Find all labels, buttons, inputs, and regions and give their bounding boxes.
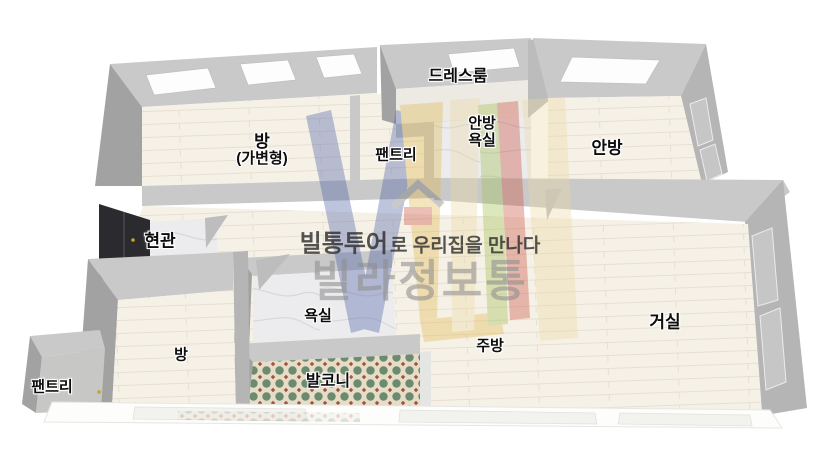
room-label-master-bath-line1: 안방 (468, 116, 496, 133)
room-label-master-bath: 안방 욕실 (468, 116, 496, 150)
room-label-entrance: 현관 (144, 231, 175, 250)
room-label-master-bedroom: 안방 (591, 138, 622, 157)
block-room-small (78, 251, 250, 412)
block-pantry-bottom (22, 330, 105, 413)
floorplan-screenshot: 빌통투어 로 우리집을 만나다 빌라정보통 드레스룸 방 (가변형) 팬트리 안… (0, 0, 840, 472)
room-label-dress-room: 드레스룸 (429, 68, 488, 86)
room-label-bathroom: 욕실 (304, 309, 332, 326)
room-label-pantry-bottom: 팬트리 (31, 380, 72, 397)
room-label-kitchen: 주방 (476, 339, 504, 356)
room-label-convertible-line2: (가변형) (236, 151, 287, 168)
room-label-living-room: 거실 (649, 312, 680, 331)
room-label-pantry-top: 팬트리 (375, 148, 416, 165)
room-label-convertible-line1: 방 (236, 132, 287, 151)
room-label-small-room: 방 (174, 348, 188, 365)
room-label-balcony: 발코니 (306, 373, 350, 391)
room-label-convertible-room: 방 (가변형) (236, 132, 287, 168)
watermark-brand-large: 빌라정보통 (311, 245, 528, 309)
room-label-master-bath-line2: 욕실 (468, 133, 496, 150)
